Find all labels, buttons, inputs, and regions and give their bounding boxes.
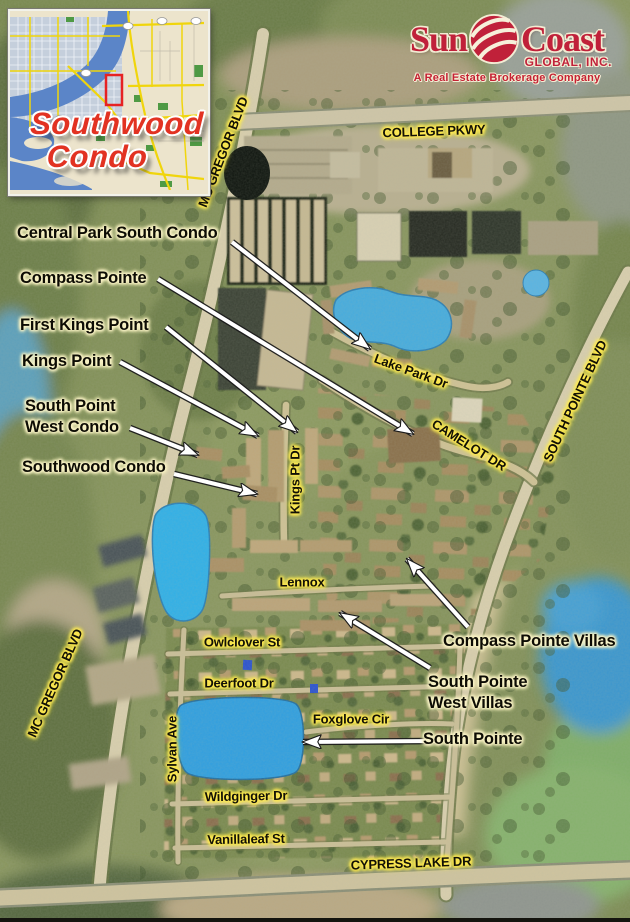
community-label-compass-pointe-villas: Compass Pointe Villas <box>443 631 615 652</box>
logo-word-coast: Coast <box>521 18 604 60</box>
community-label-southwood-condo: Southwood Condo <box>22 457 166 478</box>
community-label-south-point-west-condo: South PointWest Condo <box>25 396 119 437</box>
road-label-deerfoot-dr: Deerfoot Dr <box>204 676 273 691</box>
arrow-southwood-condo <box>174 474 257 494</box>
logo-word-sun: Sun <box>410 18 467 60</box>
community-label-line: South Point <box>25 396 119 417</box>
community-label-line: South Pointe <box>423 729 522 750</box>
road-label-sylvan-ave: Sylvan Ave <box>165 716 180 782</box>
community-label-compass-pointe: Compass Pointe <box>20 268 146 289</box>
inset-title-line2: Condo <box>8 140 186 173</box>
road-label-lennox: Lennox <box>279 575 324 590</box>
community-label-central-park-south-condo: Central Park South Condo <box>17 223 218 244</box>
inset-map: Southwood Condo <box>8 9 210 196</box>
road-label-foxglove-cir: Foxglove Cir <box>313 712 389 727</box>
map-canvas: MC GREGOR BLVDCOLLEGE PKWYSOUTH POINTE B… <box>0 0 630 922</box>
community-label-first-kings-point: First Kings Point <box>20 315 149 336</box>
community-label-kings-point: Kings Point <box>22 351 111 372</box>
arrow-compass-pointe-villas <box>407 559 468 627</box>
arrow-first-kings-point <box>166 327 297 432</box>
globe-icon <box>468 13 520 65</box>
arrow-kings-point <box>120 362 258 436</box>
inset-title: Southwood Condo <box>8 107 209 173</box>
inset-title-line1: Southwood <box>24 107 210 140</box>
community-label-line: Central Park South Condo <box>17 223 218 244</box>
community-label-south-pointe-west-villas: South PointeWest Villas <box>428 672 527 713</box>
community-label-line: Compass Pointe <box>20 268 146 289</box>
community-label-line: Compass Pointe Villas <box>443 631 615 652</box>
community-label-line: West Condo <box>25 417 119 438</box>
arrow-south-pointe-west-villas <box>340 613 430 668</box>
community-label-line: South Pointe <box>428 672 527 693</box>
road-label-kings-pt-dr: Kings Pt Dr <box>288 446 303 515</box>
suncoast-logo: Sun Coast GLOBAL, INC. A Real Estate Bro… <box>388 11 626 84</box>
arrow-south-pointe <box>303 741 436 742</box>
road-label-vanillaleaf-st: Vanillaleaf St <box>207 831 285 847</box>
logo-tagline: A Real Estate Brokerage Company <box>388 72 626 84</box>
arrow-south-point-west-condo <box>130 428 198 455</box>
community-label-line: Kings Point <box>22 351 111 372</box>
community-label-line: First Kings Point <box>20 315 149 336</box>
road-label-owlclover-st: Owlclover St <box>204 635 280 650</box>
community-label-south-pointe: South Pointe <box>423 729 522 750</box>
road-label-wildginger-dr: Wildginger Dr <box>205 788 288 804</box>
community-label-line: Southwood Condo <box>22 457 166 478</box>
community-label-line: West Villas <box>428 693 527 714</box>
